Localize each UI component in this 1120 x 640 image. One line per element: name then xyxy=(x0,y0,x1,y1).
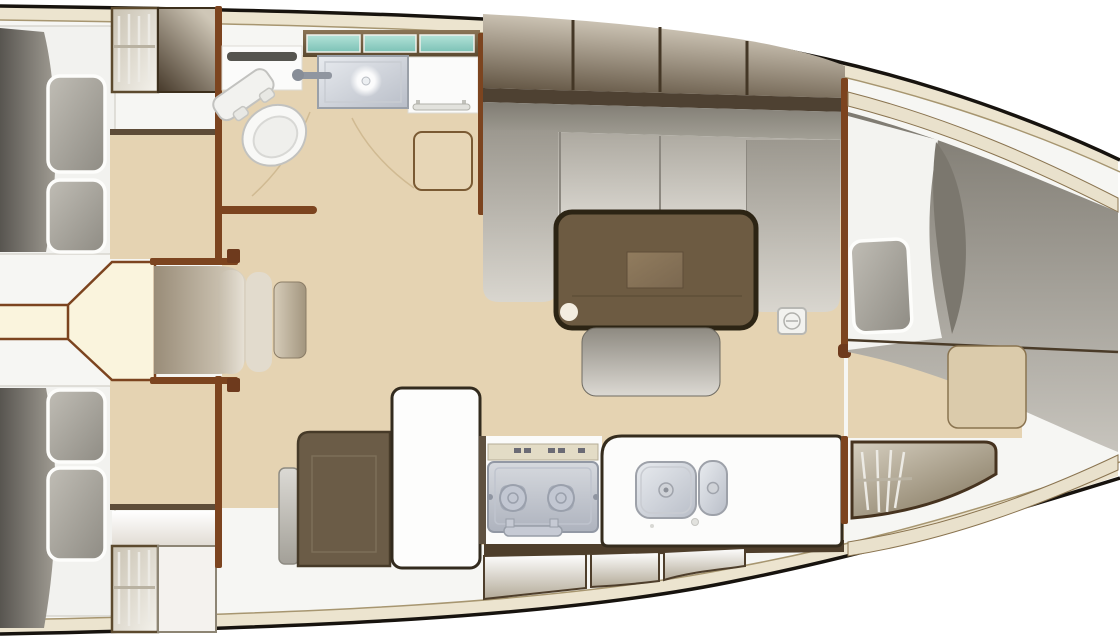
bench-seat xyxy=(582,328,720,396)
floorplan-stage xyxy=(0,0,1120,640)
worktop xyxy=(392,388,480,568)
cabin-floor-sill xyxy=(110,504,218,510)
pillow xyxy=(48,390,105,462)
cabinet xyxy=(158,546,216,632)
cabin-floor xyxy=(110,380,218,504)
two-burner-stove xyxy=(487,444,599,536)
towel-rail-dark xyxy=(227,52,297,61)
handrail-top xyxy=(150,258,238,265)
gimbal-pivot xyxy=(487,494,493,500)
table-inlay xyxy=(627,252,683,288)
drain xyxy=(362,77,370,85)
pillow xyxy=(48,468,105,560)
pillow xyxy=(850,238,913,333)
cabin-floor-sill xyxy=(110,129,218,135)
hanger-rail xyxy=(113,45,155,48)
cabin-seat xyxy=(948,346,1026,428)
hanger-rail xyxy=(113,586,155,589)
hanging-locker xyxy=(112,546,158,632)
drain xyxy=(708,483,719,494)
table-leg xyxy=(560,303,578,321)
under-step-locker xyxy=(279,468,299,564)
cabinet xyxy=(158,8,216,92)
step-2 xyxy=(218,270,244,374)
newel-post-top xyxy=(227,249,240,263)
overhead-lockers xyxy=(483,14,845,98)
burner xyxy=(548,485,574,511)
newel-post-bottom xyxy=(227,378,240,392)
aft-cabin-port xyxy=(0,380,218,632)
yacht-floorplan xyxy=(0,0,1120,640)
handrail-bottom xyxy=(150,377,238,384)
faucet-knob xyxy=(292,69,304,81)
cabin-floor xyxy=(110,135,218,259)
step-3 xyxy=(246,272,272,372)
step-4 xyxy=(274,282,306,358)
sofa-chaise-left xyxy=(483,130,558,302)
pillow xyxy=(48,180,105,252)
stove-alcove-wall xyxy=(479,436,486,544)
pillow xyxy=(48,76,105,172)
sofa-return-right xyxy=(747,140,840,312)
window-strip xyxy=(307,35,474,52)
head-partition-wall xyxy=(215,206,317,214)
cockpit-passage xyxy=(0,305,70,339)
burner xyxy=(500,485,526,511)
deck-fitting xyxy=(778,308,806,334)
hanging-locker xyxy=(112,8,158,92)
aft-cabin-starboard xyxy=(0,8,218,259)
gimbal-pivot xyxy=(593,494,599,500)
head-door xyxy=(414,132,472,190)
